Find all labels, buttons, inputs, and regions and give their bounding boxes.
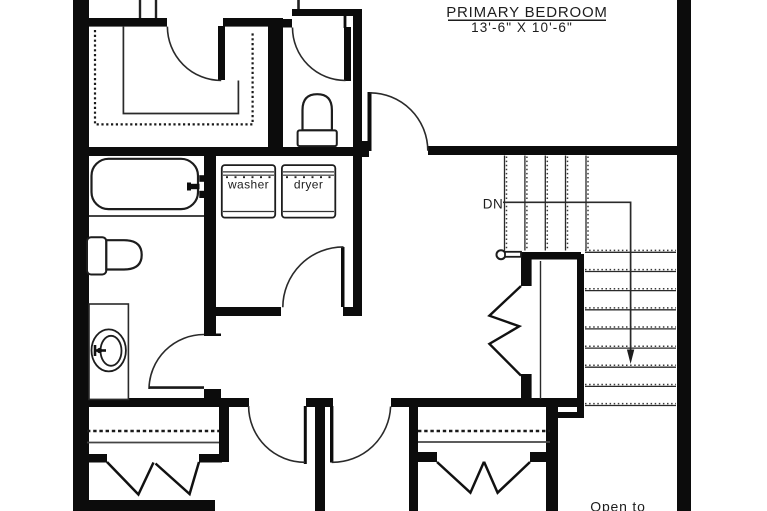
svg-text:13'-6" X 10'-6": 13'-6" X 10'-6" [471, 20, 573, 35]
svg-text:PRIMARY BEDROOM: PRIMARY BEDROOM [446, 4, 607, 21]
svg-text:dryer: dryer [294, 178, 323, 192]
svg-text:DN: DN [483, 197, 504, 212]
svg-text:washer: washer [227, 178, 269, 192]
svg-text:Open to: Open to [590, 499, 645, 511]
